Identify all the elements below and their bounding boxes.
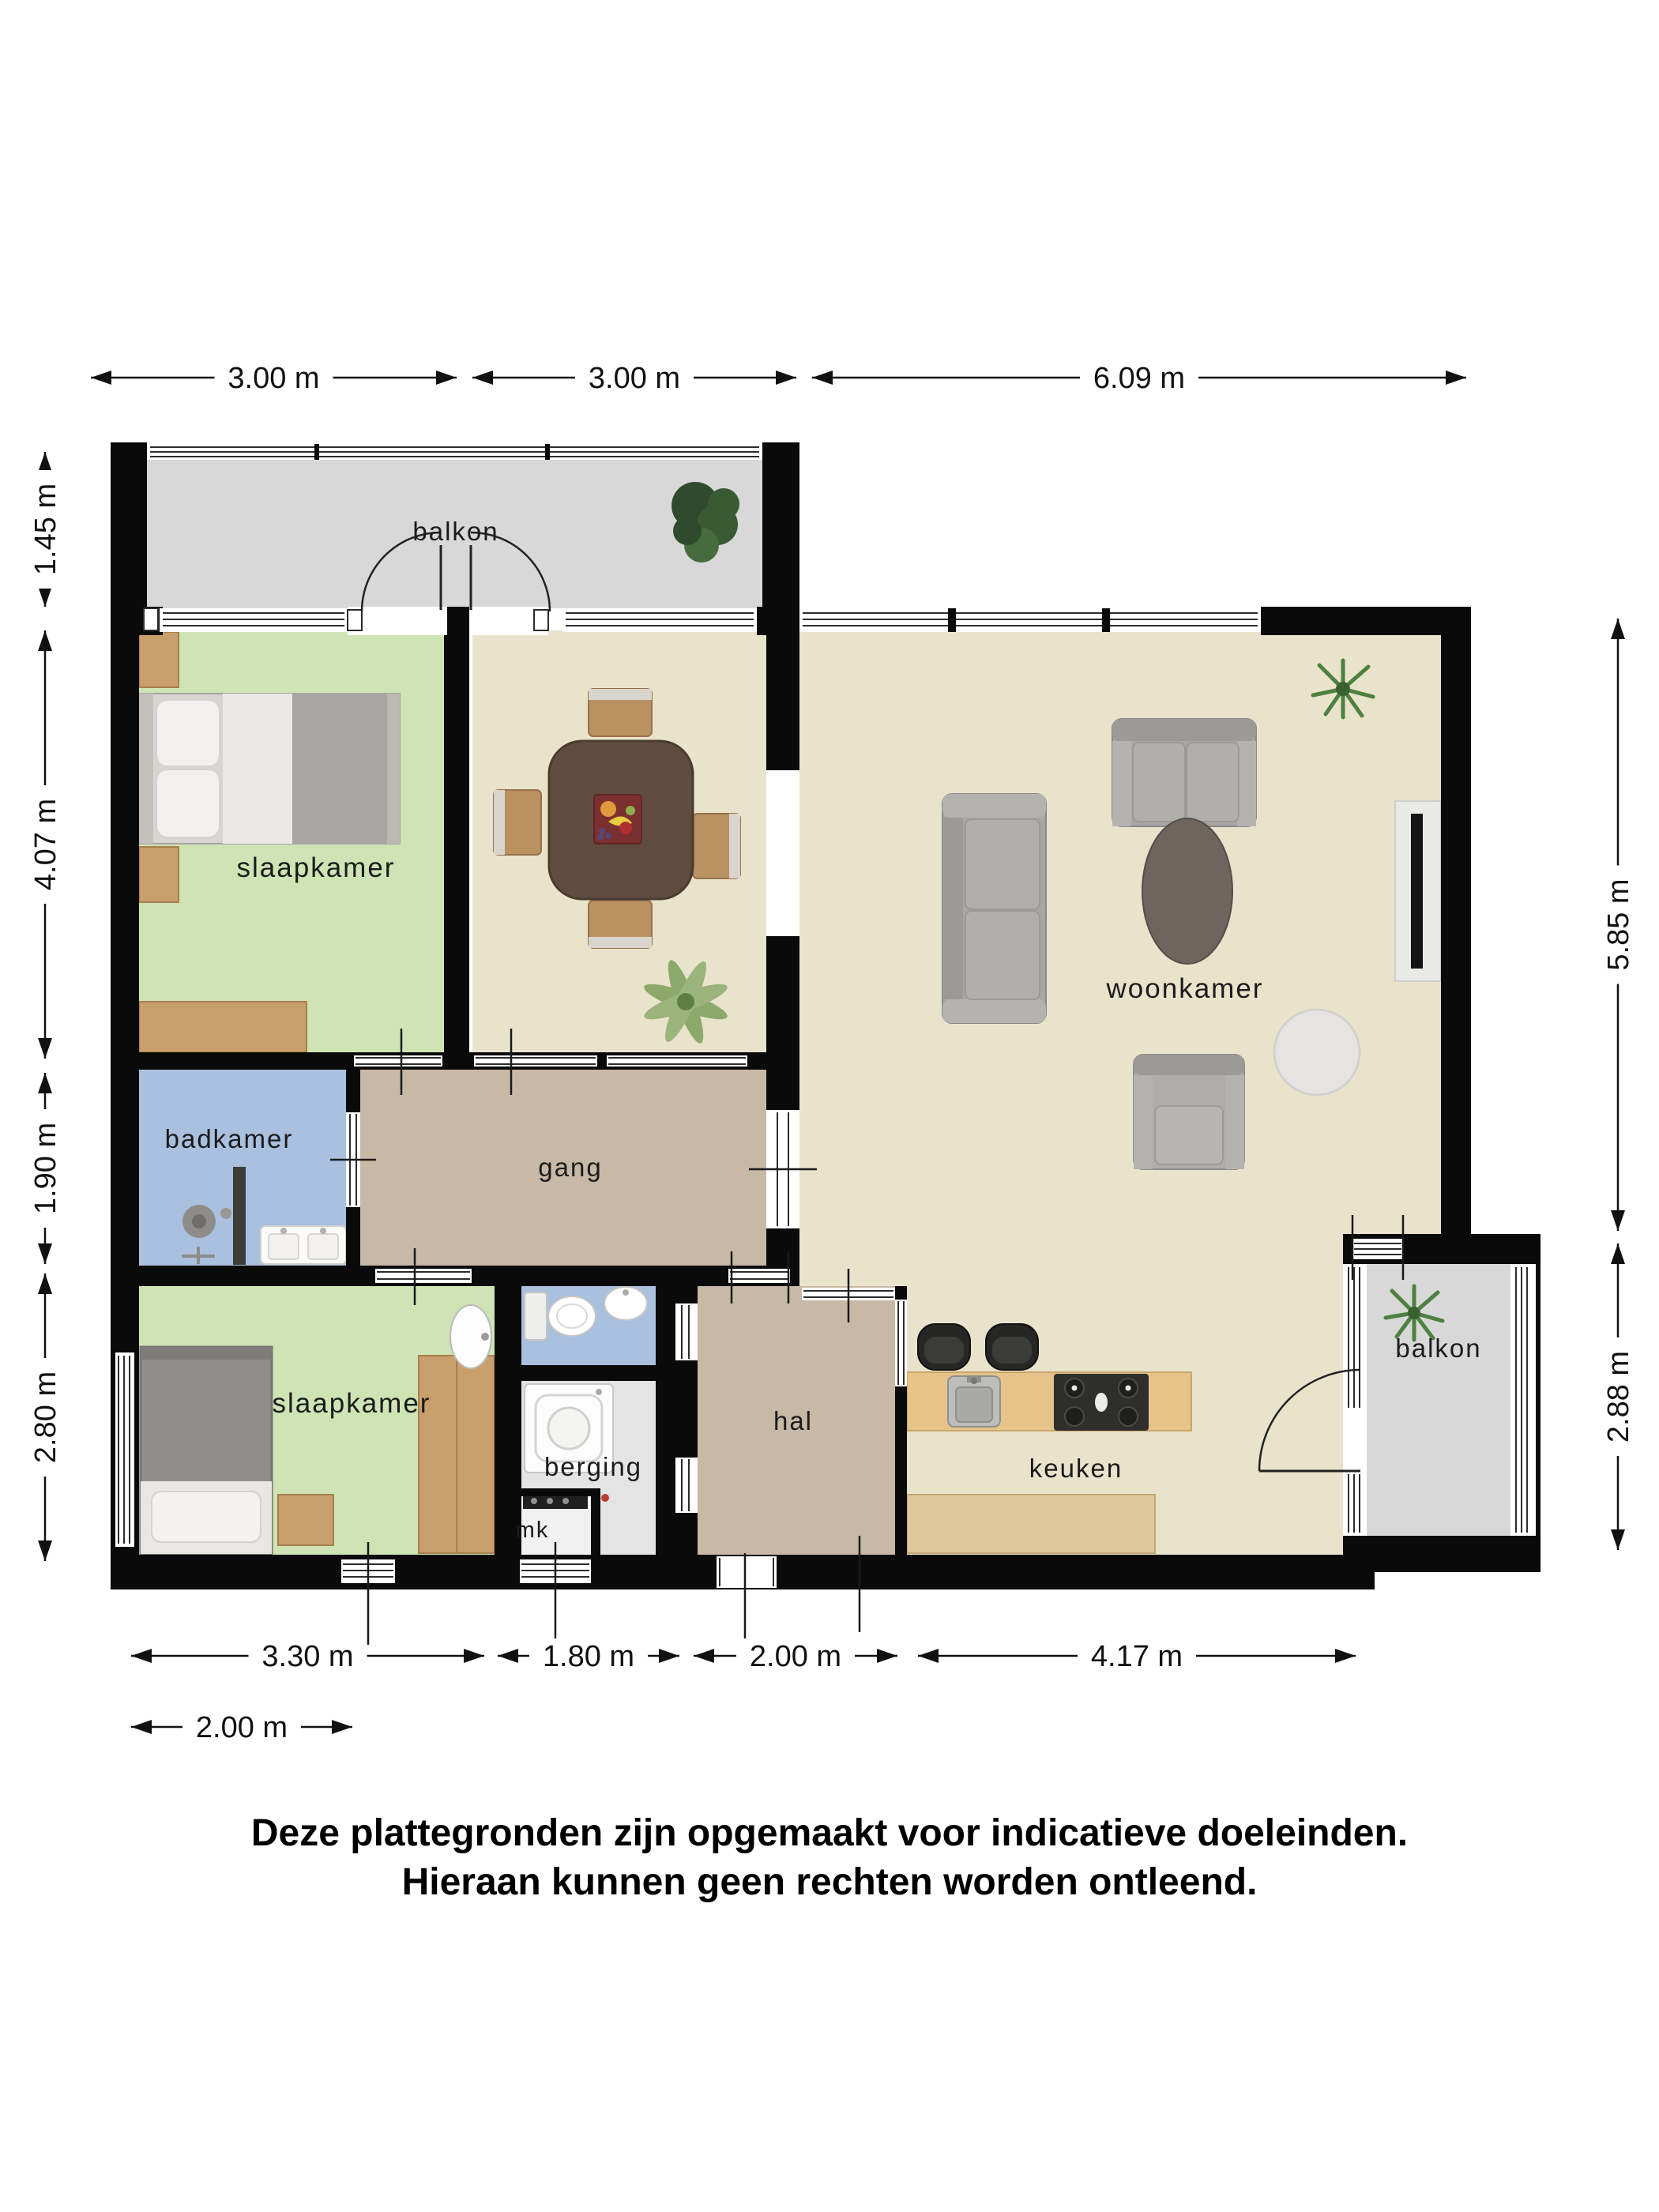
rug-icon [1274, 1010, 1360, 1095]
cabinet-icon [139, 847, 179, 902]
dimension-label: 4.17 m [1091, 1640, 1183, 1673]
room-label-bathroom: badkamer [165, 1124, 294, 1153]
coffee-table-icon [1142, 818, 1232, 964]
room-label-meter: mk [516, 1518, 550, 1543]
dimension-label: 3.00 m [228, 362, 319, 395]
dimension: 6.09 m [812, 360, 1466, 395]
dimension: 2.00 m [131, 1710, 352, 1744]
disclaimer-line-1: Deze plattegronden zijn opgemaakt voor i… [251, 1812, 1408, 1854]
shower-partition [233, 1167, 246, 1265]
dimension: 2.88 m [1601, 1243, 1635, 1550]
barstool-seat [924, 1337, 964, 1364]
double-bed-icon [139, 694, 400, 844]
stove-icon [1054, 1374, 1149, 1431]
dimension-label: 2.00 m [750, 1640, 841, 1673]
window [1352, 1239, 1403, 1259]
cabinet-icon [139, 632, 179, 687]
single-bed-icon [141, 1347, 272, 1554]
dimension: 3.30 m [131, 1638, 484, 1673]
dining-table-icon [549, 741, 693, 899]
toilet-icon [525, 1292, 596, 1340]
door-opening [354, 1055, 442, 1066]
chair-back [589, 689, 652, 700]
room-label-corridor: gang [538, 1153, 602, 1182]
dimension-label: 1.90 m [29, 1123, 62, 1214]
dimension-label: 4.07 m [29, 799, 62, 890]
room-label-balcony-bottom: balkon [1395, 1334, 1481, 1363]
dimension: 2.80 m [28, 1273, 62, 1561]
dimension-label: 3.30 m [261, 1640, 353, 1673]
dimension-label: 2.00 m [196, 1711, 288, 1744]
dimension: 1.80 m [498, 1638, 679, 1673]
room-label-living: woonkamer [1106, 973, 1264, 1004]
sofa-icon [942, 794, 1046, 1023]
dimension-label: 2.80 m [29, 1371, 62, 1463]
chair-back [729, 814, 740, 878]
window [144, 608, 348, 632]
front-door-opening [717, 1556, 777, 1588]
room-label-balcony-top: balkon [412, 517, 498, 546]
room-label-storage: berging [544, 1452, 642, 1481]
dimension: 5.85 m [1601, 619, 1635, 1231]
window [799, 608, 1261, 632]
dimension: 3.00 m [472, 360, 796, 395]
door-opening [895, 1300, 907, 1386]
armchair-icon [1134, 1055, 1244, 1169]
room-label-hall: hal [773, 1406, 813, 1435]
wardrobe-icon [419, 1356, 495, 1553]
balcony-bottom-floor [1367, 1264, 1510, 1536]
chair-back [589, 937, 652, 948]
vanity-sink-icon [261, 1226, 346, 1264]
dimension-label: 6.09 m [1093, 362, 1185, 395]
dimension-label: 1.80 m [543, 1640, 634, 1673]
dimension: 1.90 m [28, 1073, 62, 1264]
loveseat-icon [1112, 719, 1256, 826]
dimension: 4.07 m [28, 630, 62, 1059]
nightstand-icon [278, 1495, 333, 1545]
floorplan-page: balkonslaapkamerwoonkamerbadkamergangsla… [0, 0, 1659, 2212]
room-label-bedroom-top: slaapkamer [237, 852, 396, 883]
dimension: 4.17 m [918, 1638, 1356, 1673]
chair-back [494, 790, 505, 855]
railing [147, 444, 762, 460]
kitchen-sink-icon [948, 1376, 1000, 1427]
dimension: 1.45 m [28, 452, 62, 607]
passage-opening [766, 770, 799, 936]
barstool-seat [992, 1337, 1032, 1364]
room-label-bedroom-bottom: slaapkamer [273, 1388, 431, 1419]
dimension-label: 3.00 m [589, 362, 680, 395]
dimension: 2.00 m [694, 1638, 897, 1673]
disclaimer-line-2: Hieraan kunnen geen rechten worden ontle… [402, 1861, 1258, 1903]
window [474, 1054, 747, 1068]
tv-icon [1395, 801, 1441, 981]
dimension-label: 5.85 m [1602, 878, 1635, 970]
window [562, 608, 757, 632]
dimension-label: 1.45 m [29, 483, 62, 575]
kitchen-cabinet [907, 1495, 1155, 1553]
dimension-label: 2.88 m [1602, 1351, 1635, 1443]
dimension: 3.00 m [91, 360, 457, 395]
room-label-kitchen: keuken [1029, 1454, 1123, 1483]
dresser-icon [139, 1002, 307, 1052]
window [115, 1352, 134, 1547]
washbasin-icon [450, 1305, 491, 1368]
corner-sink-icon [604, 1287, 647, 1320]
